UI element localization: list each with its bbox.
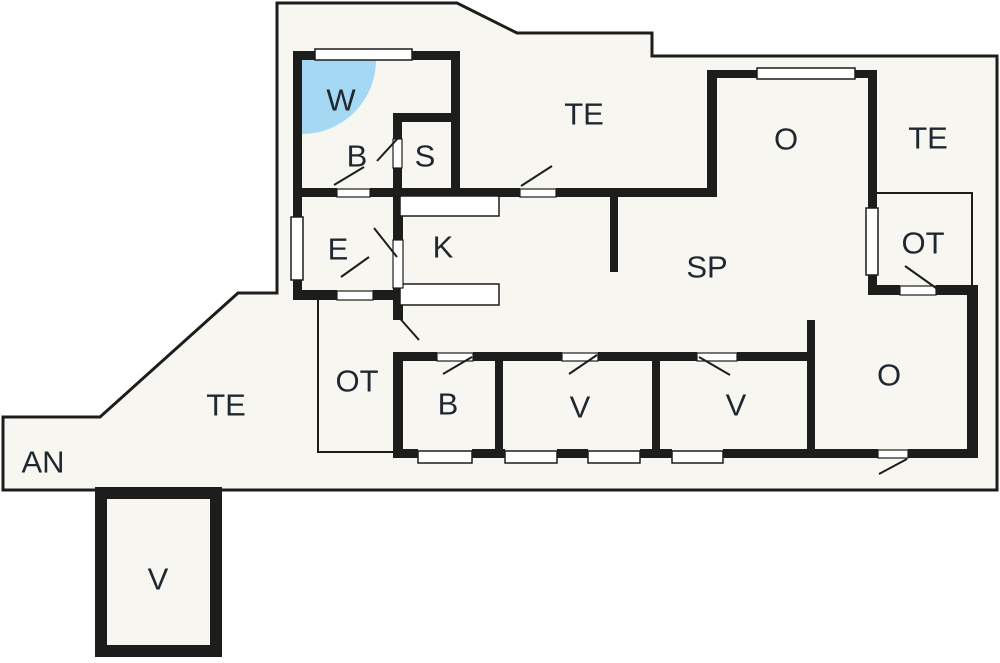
room-label-bath: B	[347, 139, 368, 174]
room-label-ot-left: OT	[335, 364, 378, 399]
wall-segment	[451, 51, 460, 197]
room-label-sauna: S	[415, 139, 436, 174]
wall-segment	[868, 285, 900, 295]
wall-segment	[807, 320, 815, 458]
wall-segment	[737, 352, 807, 361]
door-threshold	[520, 189, 556, 197]
wall-segment	[95, 487, 222, 499]
kitchen-counter	[400, 284, 499, 305]
wall-segment	[707, 70, 717, 197]
wall-segment	[403, 352, 437, 361]
window	[757, 68, 855, 79]
room-label-entry: E	[328, 232, 349, 267]
wall-segment	[293, 290, 337, 300]
room-label-bed-b: B	[438, 387, 459, 422]
room-label-an: AN	[21, 445, 64, 480]
wall-segment	[610, 197, 618, 272]
wall-segment	[373, 290, 393, 300]
wall-segment	[95, 487, 107, 657]
room-label-ot-right: OT	[901, 226, 944, 261]
room-label-o-top: O	[774, 122, 798, 157]
room-label-sp: SP	[686, 250, 727, 285]
window	[315, 49, 412, 60]
window	[672, 451, 723, 463]
wall-segment	[95, 645, 222, 657]
wall-segment	[472, 449, 505, 458]
wall-segment	[393, 352, 403, 458]
window	[866, 208, 878, 275]
wall-segment	[557, 449, 588, 458]
room-label-w: W	[326, 83, 356, 118]
wall-segment	[495, 352, 503, 458]
room-label-te-top: TE	[564, 97, 604, 132]
wall-segment	[556, 188, 717, 197]
wall-segment	[210, 487, 222, 657]
floor-plan: W B S TE O TE OT E K SP OT B V V O TE AN…	[0, 0, 1000, 663]
wall-segment	[640, 449, 672, 458]
wall-segment	[723, 449, 878, 458]
door-threshold	[393, 240, 403, 288]
wall-segment	[473, 352, 562, 361]
window	[588, 451, 640, 463]
window	[505, 451, 557, 463]
room-label-bed-v2: V	[726, 388, 747, 423]
wall-segment	[967, 285, 978, 458]
room-label-te-right: TE	[908, 121, 948, 156]
door-threshold	[878, 450, 908, 458]
wall-segment	[393, 449, 418, 458]
wall-segment	[598, 352, 697, 361]
kitchen-counter	[400, 196, 499, 216]
door-threshold	[900, 286, 936, 295]
room-label-o-bottom: O	[877, 358, 901, 393]
window	[418, 451, 472, 463]
door-threshold	[337, 189, 370, 197]
wall-segment	[393, 113, 402, 139]
room-label-bed-v1: V	[570, 390, 591, 425]
room-label-kitchen: K	[433, 230, 454, 265]
floor-plan-page: W B S TE O TE OT E K SP OT B V V O TE AN…	[0, 0, 1000, 663]
wall-segment	[293, 188, 337, 197]
room-label-te-left: TE	[206, 388, 246, 423]
wall-segment	[652, 352, 660, 458]
window	[291, 217, 303, 280]
door-threshold	[337, 291, 373, 300]
room-label-annex-v: V	[148, 562, 169, 597]
